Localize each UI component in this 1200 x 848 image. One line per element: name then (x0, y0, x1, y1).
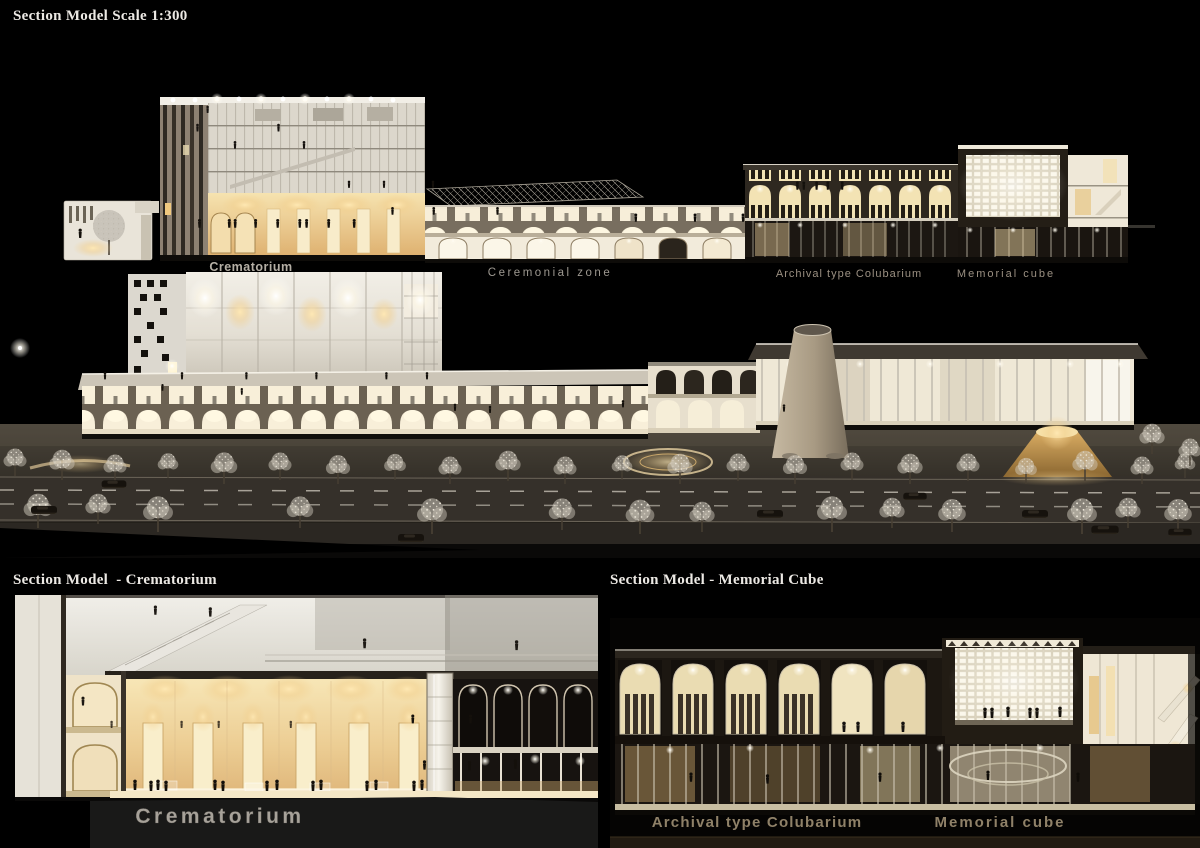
title-memorial-section: Section Model - Memorial Cube (610, 572, 824, 589)
lower-glass-level (615, 736, 1195, 815)
title-scale-model: Section Model Scale 1:300 (13, 8, 188, 25)
label-archival-columbarium-closeup: Archival type Colubarium (652, 814, 863, 831)
crematorium-closeup-photo: Crematorium (15, 595, 598, 848)
glass-column (427, 673, 453, 793)
annex-fragment (64, 201, 159, 260)
label-memorial-cube-closeup: Memorial cube (934, 814, 1065, 831)
memorial-cube (942, 638, 1083, 744)
connector-arcade (648, 362, 760, 433)
crematorium-building-section (160, 93, 425, 261)
warm-hall (110, 675, 429, 797)
long-section-model-photo: Crematorium Ceremonial zone Archival typ… (55, 85, 1155, 280)
table-edge-strip (610, 837, 1200, 848)
crematorium-facade (128, 272, 442, 384)
presentation-board: Section Model Scale 1:300 Section Model … (0, 0, 1200, 848)
site-elevation-photo (0, 266, 1200, 558)
columbarium-bays (615, 650, 945, 736)
label-crematorium-base: Crematorium (135, 805, 304, 828)
memorial-cube-closeup-photo: Archival type Colubarium Memorial cube (610, 618, 1200, 848)
title-crematorium-section: Section Model - Crematorium (13, 572, 217, 589)
upper-floor (15, 595, 598, 675)
arcade-colonnade (78, 370, 652, 439)
